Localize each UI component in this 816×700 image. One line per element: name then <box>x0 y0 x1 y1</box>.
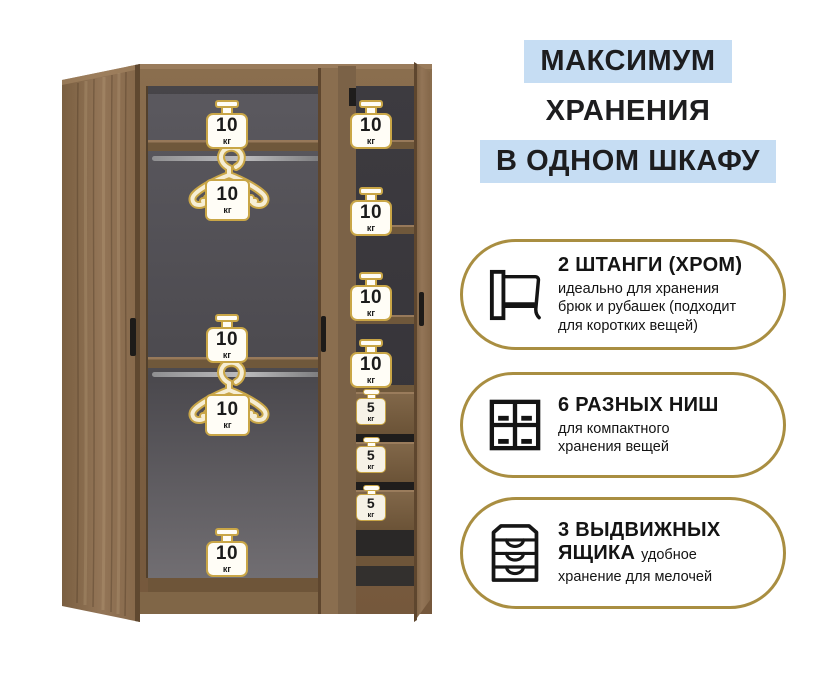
headline-line-1: МАКСИМУМ <box>524 40 731 83</box>
badge-value: 10 <box>360 203 382 222</box>
weight-badge-10kg: 10кг <box>350 187 392 236</box>
badge-unit: кг <box>367 309 375 318</box>
weight-badge-10kg: 10кг <box>206 528 248 577</box>
door-handle-middle <box>321 316 326 352</box>
badge-unit: кг <box>367 224 375 233</box>
badge-unit: кг <box>368 463 375 471</box>
drawers-icon <box>485 522 545 584</box>
weight-knob <box>359 272 383 280</box>
right-door <box>414 62 430 622</box>
feature-rods: 2 ШТАНГИ (ХРОМ) идеально для хранения бр… <box>460 239 786 350</box>
weight-knob <box>215 314 239 322</box>
weight-knob <box>215 100 239 108</box>
badge-value: 5 <box>367 496 375 510</box>
weight-badge-10kg: 10кг <box>206 314 248 363</box>
cabinet-floor <box>148 578 336 592</box>
wardrobe-infographic: 10кг 10кг 10кг 10кг 10кг 10кг 10кг 10кг … <box>0 0 816 700</box>
badge-value: 10 <box>216 116 238 135</box>
niches-icon <box>485 398 545 452</box>
weight-badge-10kg: 10кг <box>350 339 392 388</box>
badge-unit: кг <box>223 351 231 360</box>
badge-unit: кг <box>223 206 231 215</box>
headline-line-2: ХРАНЕНИЯ <box>530 90 727 133</box>
weight-knob <box>215 528 239 536</box>
feature-body-inline: удобное <box>641 547 697 563</box>
weight-knob <box>363 389 380 395</box>
badge-value: 10 <box>360 355 382 374</box>
feature-title: 3 ВЫДВИЖНЫХ ЯЩИКА удобное <box>558 519 767 565</box>
weight-badge-10kg-hanger: 10кг <box>205 181 250 221</box>
left-door <box>62 64 140 622</box>
weight-badge-5kg: 5кг <box>356 485 386 521</box>
headline: МАКСИМУМ ХРАНЕНИЯ В ОДНОМ ШКАФУ <box>458 40 798 190</box>
weight-badge-10kg: 10кг <box>206 100 248 149</box>
badge-value: 10 <box>216 185 238 204</box>
badge-value: 10 <box>216 400 238 419</box>
door-handle-right <box>419 292 424 326</box>
feature-niches: 6 РАЗНЫХ НИШ для компактного хранения ве… <box>460 372 786 478</box>
badge-unit: кг <box>223 421 231 430</box>
weight-knob <box>363 437 380 443</box>
badge-unit: кг <box>368 415 375 423</box>
weight-knob <box>359 187 383 195</box>
badge-unit: кг <box>223 565 231 574</box>
badge-value: 10 <box>216 330 238 349</box>
door-handle-left <box>130 318 136 356</box>
rod-icon <box>485 268 545 322</box>
badge-value: 10 <box>360 288 382 307</box>
feature-title: 2 ШТАНГИ (ХРОМ) <box>558 254 767 277</box>
feature-body: хранение для мелочей <box>558 568 767 586</box>
badge-unit: кг <box>223 137 231 146</box>
badge-unit: кг <box>368 511 375 519</box>
badge-value: 10 <box>216 544 238 563</box>
badge-unit: кг <box>367 376 375 385</box>
feature-body: идеально для хранения брюк и рубашек (по… <box>558 280 767 335</box>
badge-unit: кг <box>367 137 375 146</box>
weight-badge-10kg-hanger: 10кг <box>205 396 250 436</box>
badge-value: 5 <box>367 448 375 462</box>
weight-badge-5kg: 5кг <box>356 437 386 473</box>
feature-drawers: 3 ВЫДВИЖНЫХ ЯЩИКА удобное хранение для м… <box>460 497 786 609</box>
headline-line-3: В ОДНОМ ШКАФУ <box>480 140 776 183</box>
weight-badge-5kg: 5кг <box>356 389 386 425</box>
weight-knob <box>363 485 380 491</box>
cabinet-base <box>140 592 336 614</box>
feature-title: 6 РАЗНЫХ НИШ <box>558 394 767 417</box>
badge-value: 10 <box>360 116 382 135</box>
feature-body: для компактного хранения вещей <box>558 420 767 457</box>
weight-knob <box>359 100 383 108</box>
weight-badge-10kg: 10кг <box>350 272 392 321</box>
cabinet-floor-right <box>356 556 414 566</box>
weight-badge-10kg: 10кг <box>350 100 392 149</box>
weight-knob <box>359 339 383 347</box>
badge-value: 5 <box>367 400 375 414</box>
